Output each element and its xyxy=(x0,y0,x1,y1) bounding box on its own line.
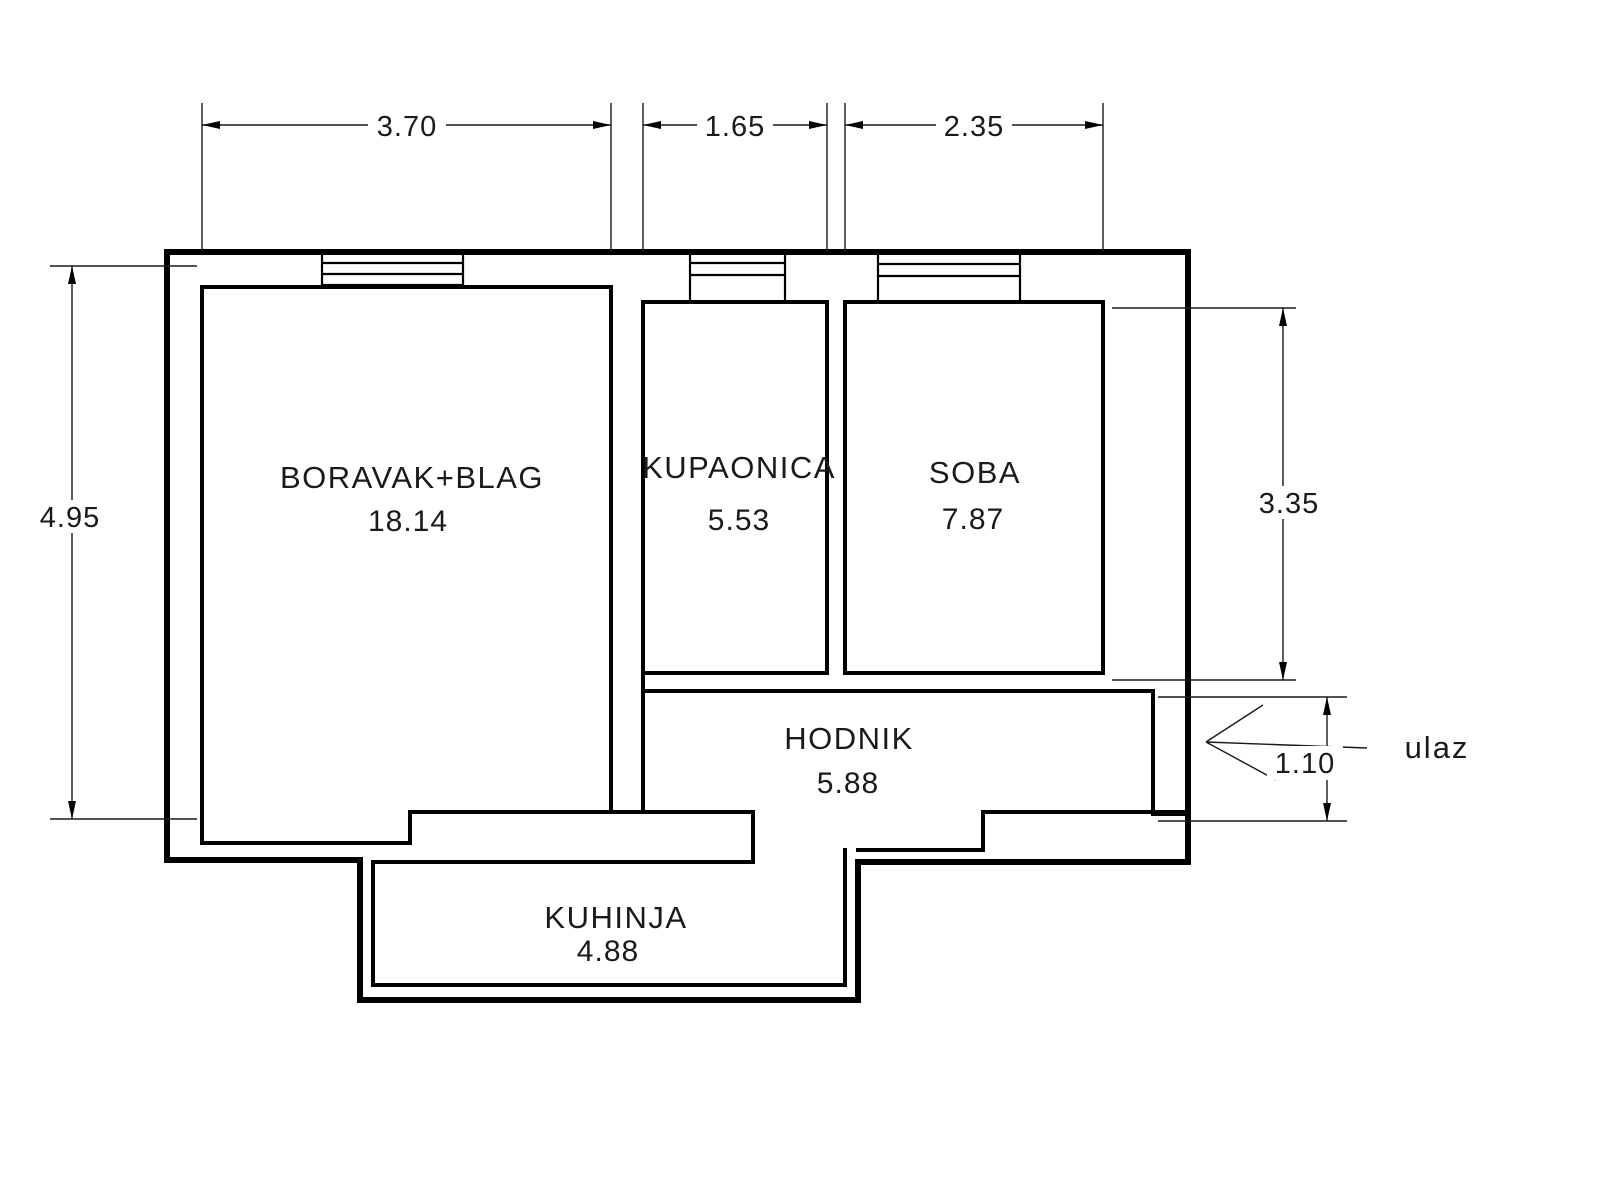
living-room-wall xyxy=(202,287,753,862)
floor-plan-drawing: 3.70 1.65 2.35 4.95 3.35 1.10 ulaz BORAV… xyxy=(0,0,1600,1200)
living-room-area: 18.14 xyxy=(368,505,448,538)
entrance-door-jamb xyxy=(1153,691,1188,814)
dim-110-value: 1.10 xyxy=(1275,748,1335,780)
bathroom-area: 5.53 xyxy=(708,504,770,537)
outer-wall-main xyxy=(167,252,1188,1000)
hallway-label: HODNIK xyxy=(784,721,914,756)
windows xyxy=(322,252,1020,302)
kitchen-area: 4.88 xyxy=(577,935,639,968)
living-room-label: BORAVAK+BLAG xyxy=(280,460,544,495)
dim-495-group xyxy=(50,266,197,819)
dim-165-value: 1.65 xyxy=(705,111,765,143)
dim-495-value: 4.95 xyxy=(40,502,100,534)
living-room-window xyxy=(322,252,463,285)
bathroom-wall xyxy=(643,302,827,673)
dim-235-value: 2.35 xyxy=(944,111,1004,143)
interior-walls xyxy=(202,287,1188,985)
bedroom-area: 7.87 xyxy=(942,503,1004,536)
hallway-bottom-step-wall xyxy=(858,812,1188,850)
outer-walls xyxy=(167,252,1188,1000)
dim-text-backgrounds xyxy=(34,108,1343,780)
kitchen-label: KUHINJA xyxy=(544,900,687,935)
hallway-area: 5.88 xyxy=(817,767,879,800)
floor-plan-page: 3.70 1.65 2.35 4.95 3.35 1.10 ulaz BORAV… xyxy=(0,0,1600,1200)
entrance-label: ulaz xyxy=(1405,730,1470,765)
bathroom-window xyxy=(690,252,785,302)
dim-370-value: 3.70 xyxy=(377,111,437,143)
dim-335-value: 3.35 xyxy=(1259,488,1319,520)
bedroom-window xyxy=(878,252,1020,302)
bathroom-label: KUPAONICA xyxy=(642,450,836,485)
bedroom-label: SOBA xyxy=(929,455,1021,490)
